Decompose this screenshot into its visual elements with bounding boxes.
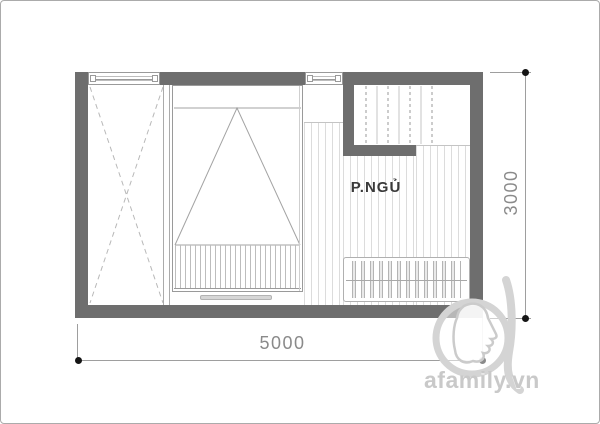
dim-height-label: 3000 — [501, 155, 522, 230]
dim-dot — [75, 357, 82, 364]
floor-plan-canvas: P.NGỦ 5000 3000 afamily.vn — [0, 0, 600, 424]
wall-left — [75, 72, 88, 318]
wardrobe-x-icon — [88, 85, 165, 305]
window-jamb — [335, 75, 341, 82]
window-top-left — [88, 72, 160, 85]
window-line — [90, 79, 158, 80]
wardrobe-side-panel — [163, 85, 170, 305]
bed-side-line — [299, 86, 300, 291]
dim-width-label: 5000 — [245, 333, 320, 354]
wall-top-right — [343, 72, 483, 85]
staircase — [354, 85, 470, 145]
wall-bottom — [75, 305, 483, 318]
dim-dot — [522, 69, 529, 76]
bed-footboard-line — [174, 288, 301, 289]
bed-step-mat — [200, 295, 272, 300]
window-jamb — [90, 75, 96, 82]
double-bed — [172, 85, 303, 292]
window-top-middle — [305, 72, 343, 85]
floor-hatch — [304, 122, 343, 306]
bed-blanket-fringe — [175, 245, 300, 289]
dim-width-line — [78, 360, 483, 361]
room-label: P.NGỦ — [340, 179, 412, 196]
stair-wall-bottom — [343, 145, 416, 156]
wardrobe — [88, 85, 165, 305]
watermark-text: afamily.vn — [424, 367, 540, 394]
window-jamb — [152, 75, 158, 82]
wall-top-middle — [160, 72, 305, 85]
stair-treads-icon — [354, 85, 470, 145]
window-jamb — [307, 75, 313, 82]
